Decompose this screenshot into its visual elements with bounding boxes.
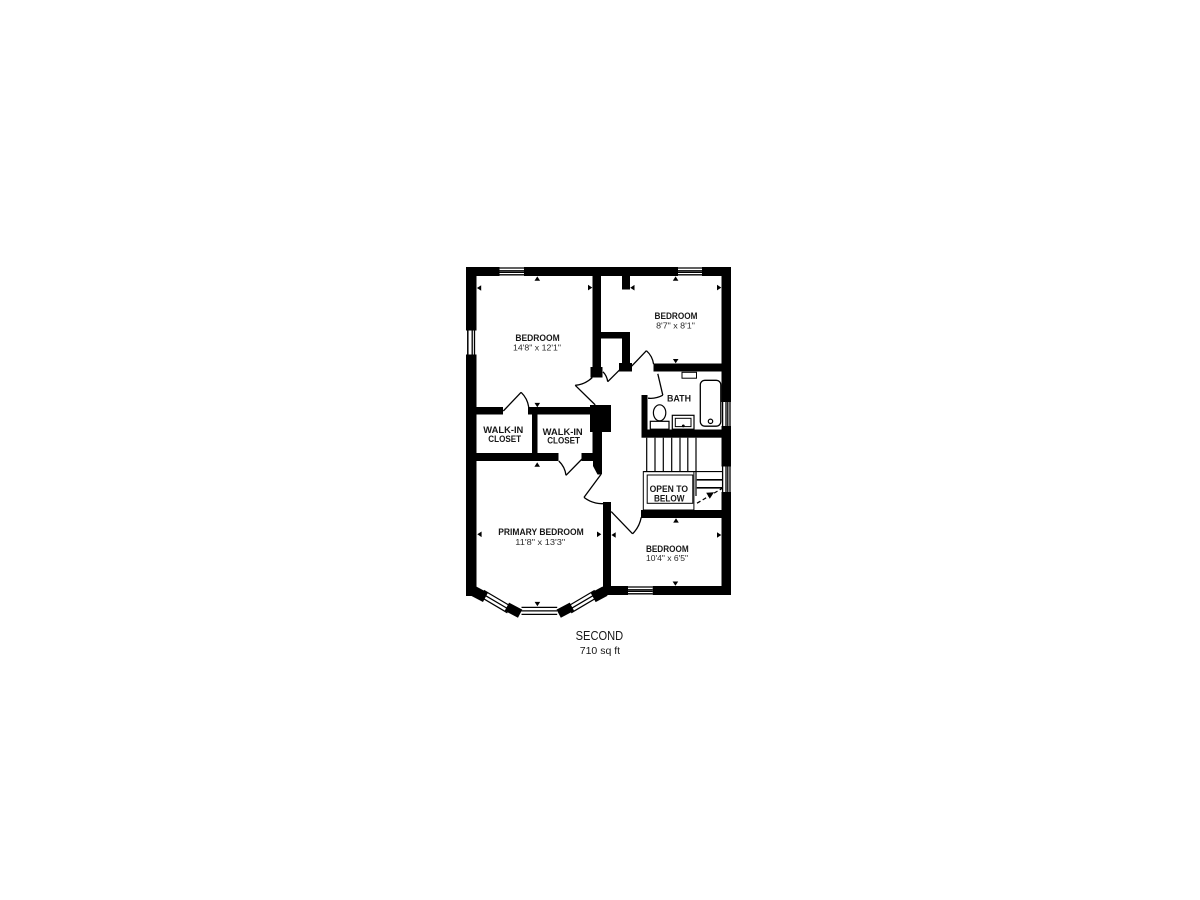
svg-text:CLOSET: CLOSET [547, 436, 580, 446]
svg-text:BELOW: BELOW [654, 493, 685, 503]
svg-text:BATH: BATH [667, 393, 691, 403]
svg-text:CLOSET: CLOSET [488, 434, 521, 444]
svg-text:SECOND: SECOND [576, 628, 624, 643]
svg-text:11'8" x 13'3": 11'8" x 13'3" [515, 537, 565, 547]
svg-text:OPEN TO: OPEN TO [650, 484, 688, 494]
svg-text:710 sq ft: 710 sq ft [580, 646, 620, 657]
svg-text:10'4" x 6'5": 10'4" x 6'5" [646, 553, 688, 563]
svg-text:8'7" x 8'1": 8'7" x 8'1" [656, 320, 695, 330]
svg-text:14'8" x 12'1": 14'8" x 12'1" [513, 342, 561, 352]
